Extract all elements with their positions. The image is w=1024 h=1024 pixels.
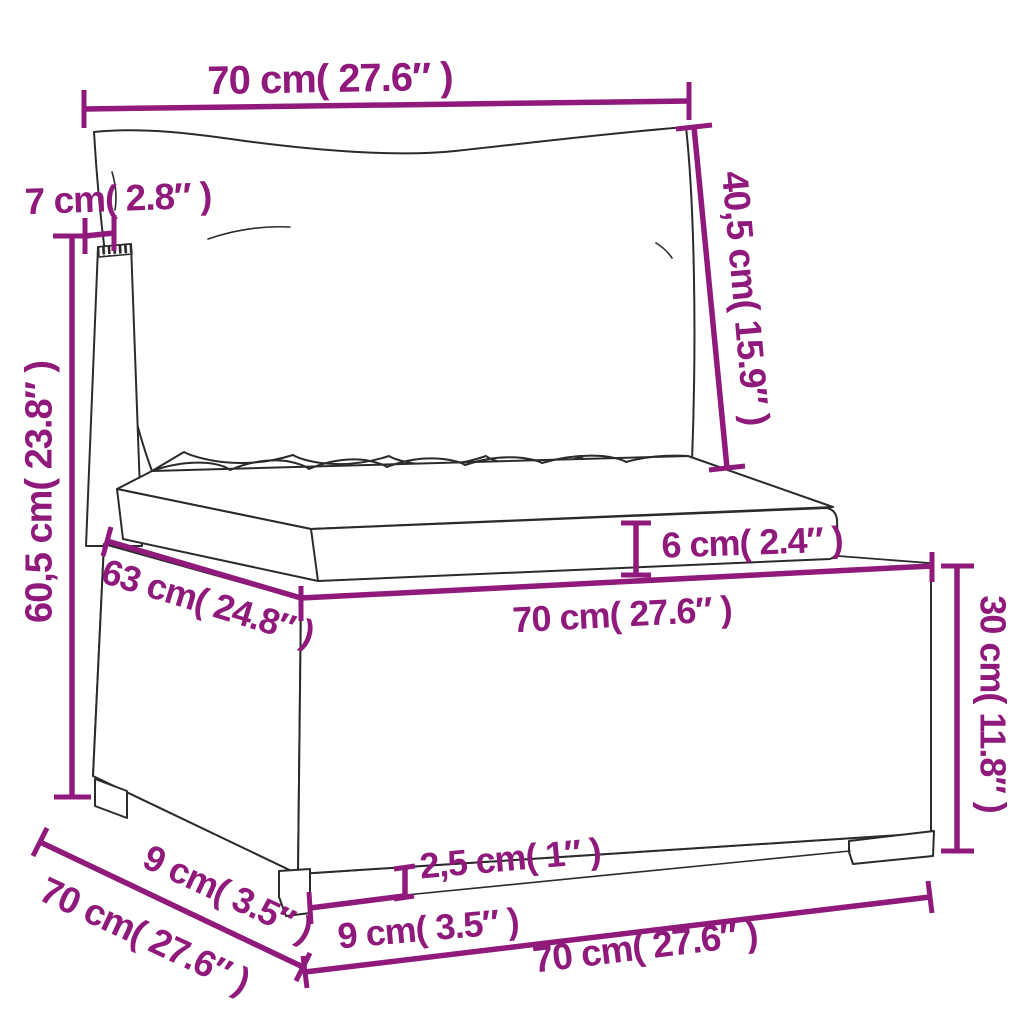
dim-total-height-label: 60,5 cm( 23.8″ ) [18, 361, 60, 623]
dim-bottom-width-label: 70 cm( 27.6″ ) [530, 912, 759, 980]
sofa-dimension-diagram: 70 cm( 27.6″ ) 7 cm( 2.8″ ) 40,5 cm( 15.… [0, 0, 1024, 1024]
seat-cushion [117, 456, 929, 581]
dim-base-height: 30 cm( 11.8″ ) [941, 566, 1013, 851]
dim-total-height: 60,5 cm( 23.8″ ) [18, 236, 91, 797]
dim-top-width: 70 cm( 27.6″ ) [84, 55, 689, 128]
dim-back-thickness-label: 7 cm( 2.8″ ) [24, 175, 212, 222]
dim-base-height-label: 30 cm( 11.8″ ) [972, 595, 1013, 812]
dim-top-width-label: 70 cm( 27.6″ ) [207, 55, 453, 103]
dim-seat-cushion-thickness-label: 6 cm( 2.4″ ) [661, 518, 844, 565]
dim-front-leg-inset: 9 cm( 3.5″ ) [309, 892, 520, 956]
dim-back-cushion-height-label: 40,5 cm( 15.9″ ) [714, 169, 777, 426]
seat-cushion-right-sliver [838, 556, 929, 563]
